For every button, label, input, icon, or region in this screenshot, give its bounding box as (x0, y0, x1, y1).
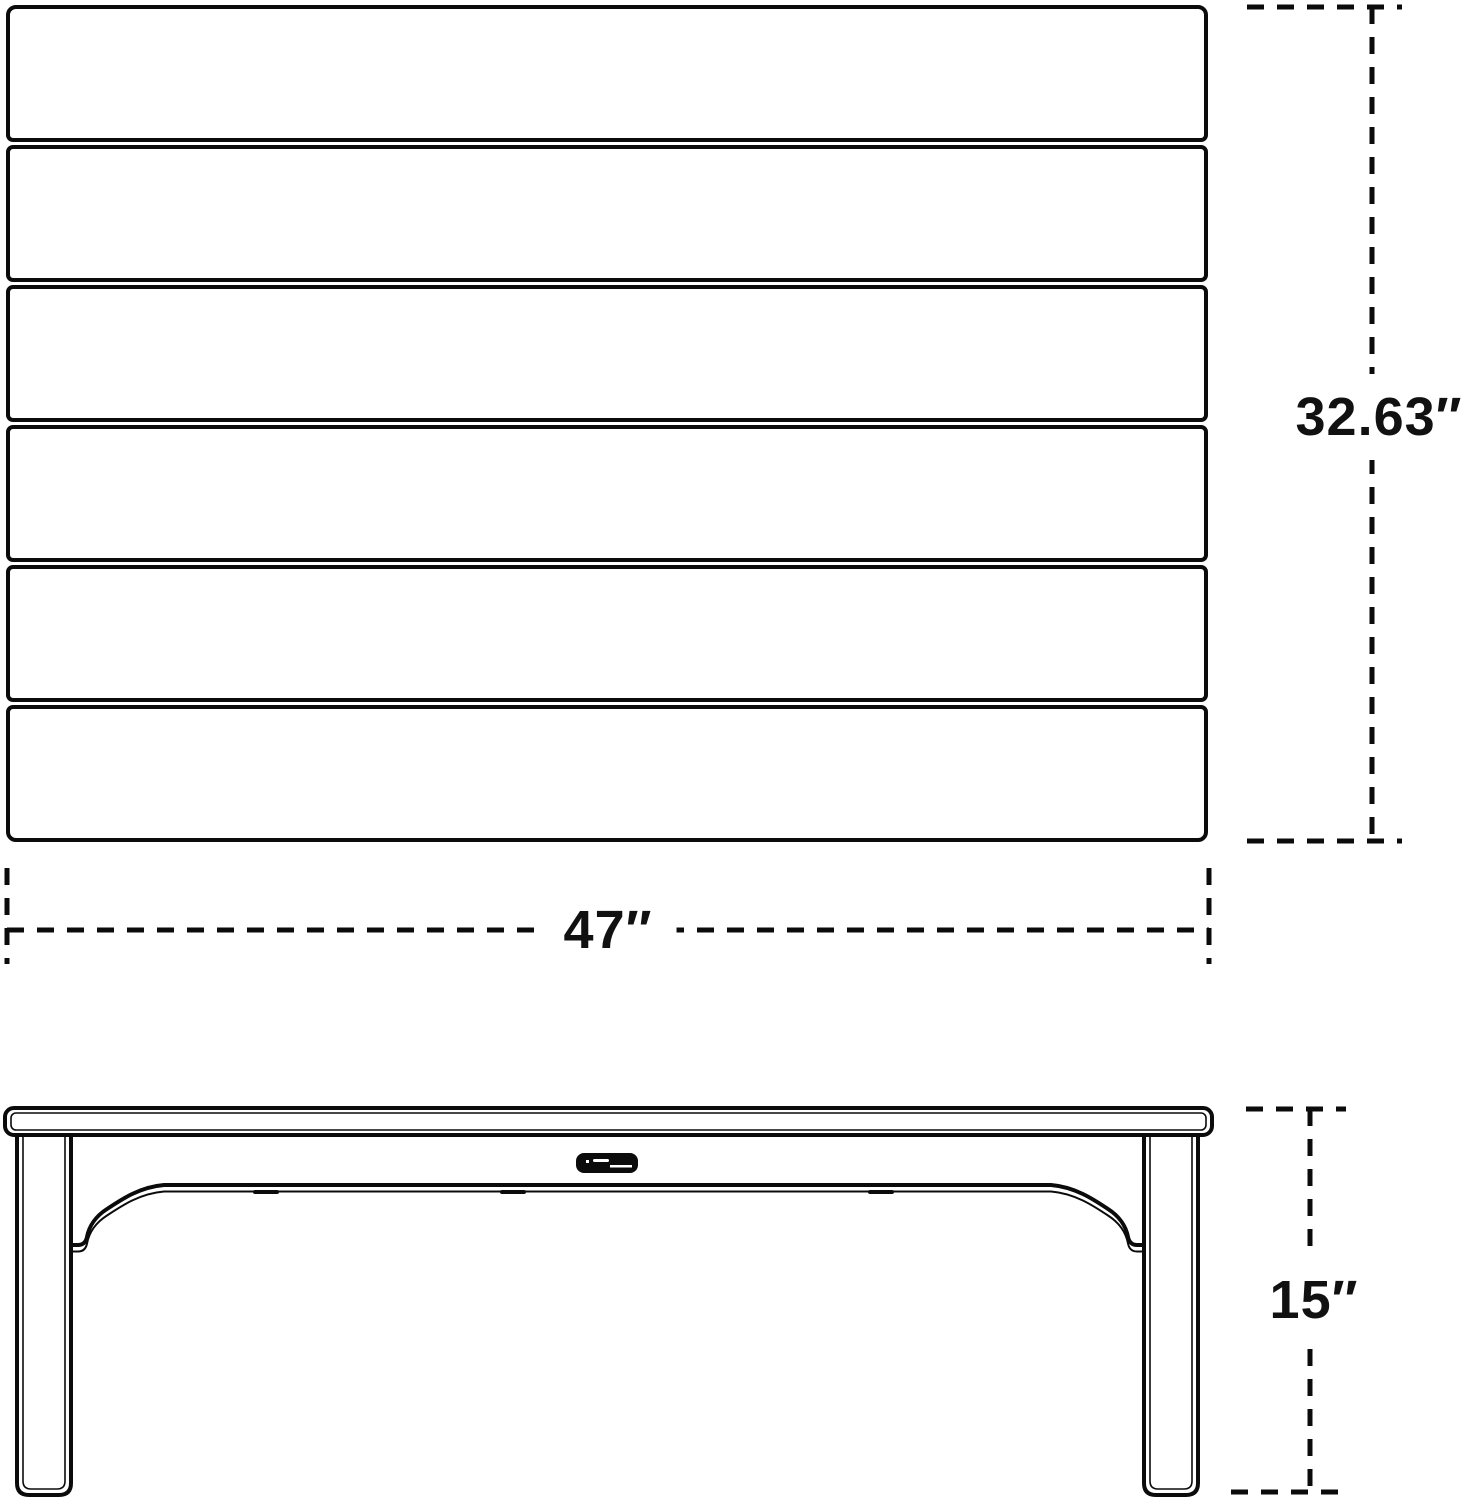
apron-rail-lower-edge (71, 1192, 1144, 1252)
right-leg (1144, 1135, 1198, 1495)
apron-joint-mark (868, 1190, 894, 1194)
brand-badge-mark (586, 1160, 589, 1163)
diagram-drawing-layer (0, 0, 1461, 1500)
width-dimension-label: 47″ (540, 901, 677, 959)
brand-badge-mark (610, 1165, 632, 1168)
apron-joint-mark (253, 1190, 279, 1194)
side-view-tabletop (5, 1108, 1212, 1135)
left-leg (17, 1135, 71, 1495)
dimension-diagram: 32.63″ 47″ 15″ (0, 0, 1461, 1500)
apron-rail (71, 1185, 1144, 1245)
depth-dimension-label: 32.63″ (1294, 374, 1461, 460)
apron-joint-mark (500, 1190, 526, 1194)
height-dimension-label: 15″ (1264, 1257, 1365, 1343)
brand-badge-mark (593, 1159, 609, 1162)
brand-badge (576, 1153, 638, 1173)
